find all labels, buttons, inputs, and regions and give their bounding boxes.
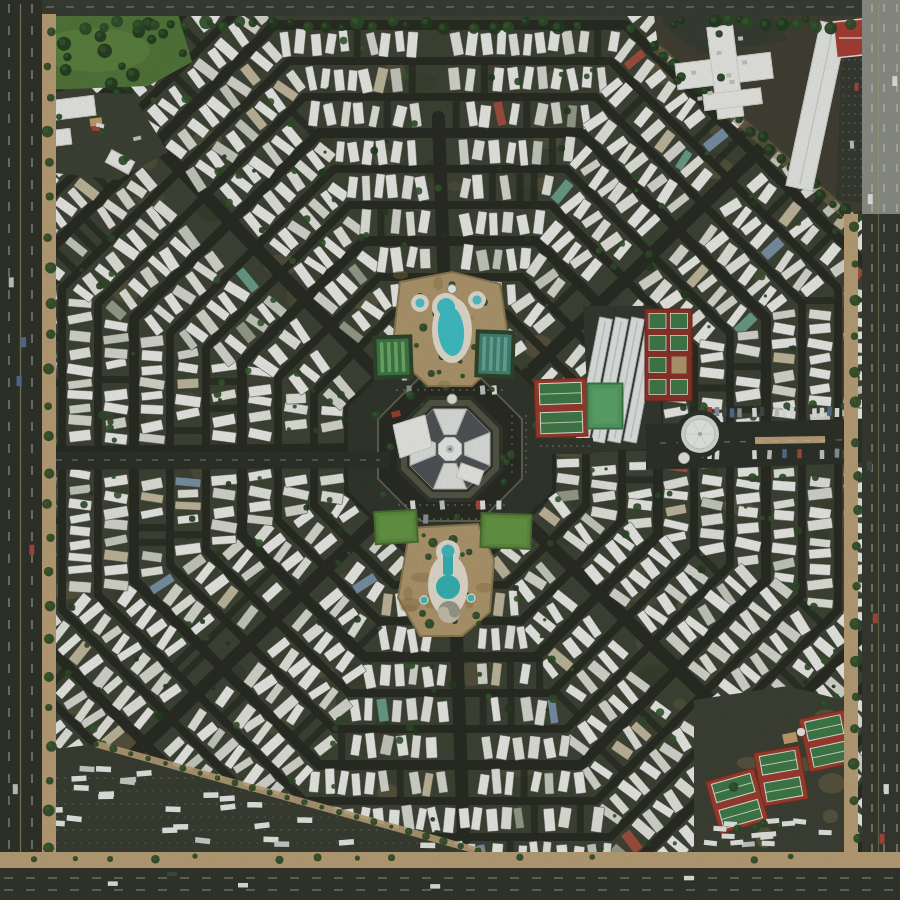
photo-effects-layer: [0, 0, 900, 900]
satellite-photo: [0, 0, 900, 900]
film-grain: [0, 0, 900, 900]
aerial-scene: [0, 0, 900, 900]
